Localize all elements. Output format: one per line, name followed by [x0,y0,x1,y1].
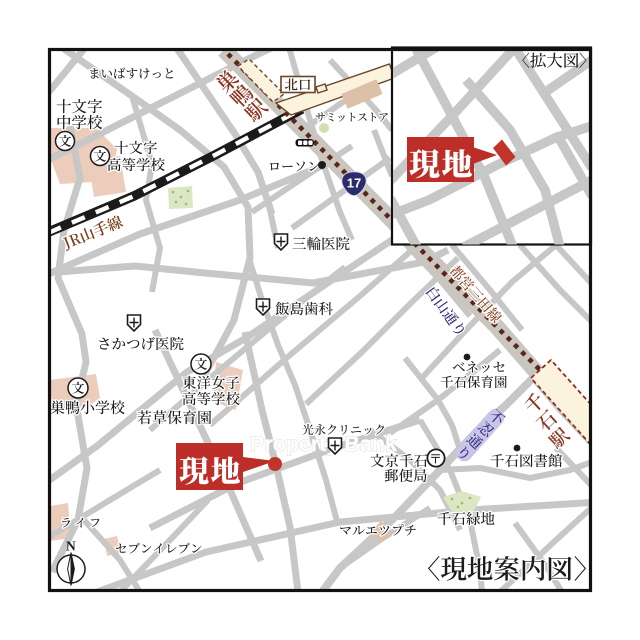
svg-text:Property Bank: Property Bank [250,432,397,456]
svg-text:N: N [66,539,76,554]
svg-text:17: 17 [347,176,361,191]
